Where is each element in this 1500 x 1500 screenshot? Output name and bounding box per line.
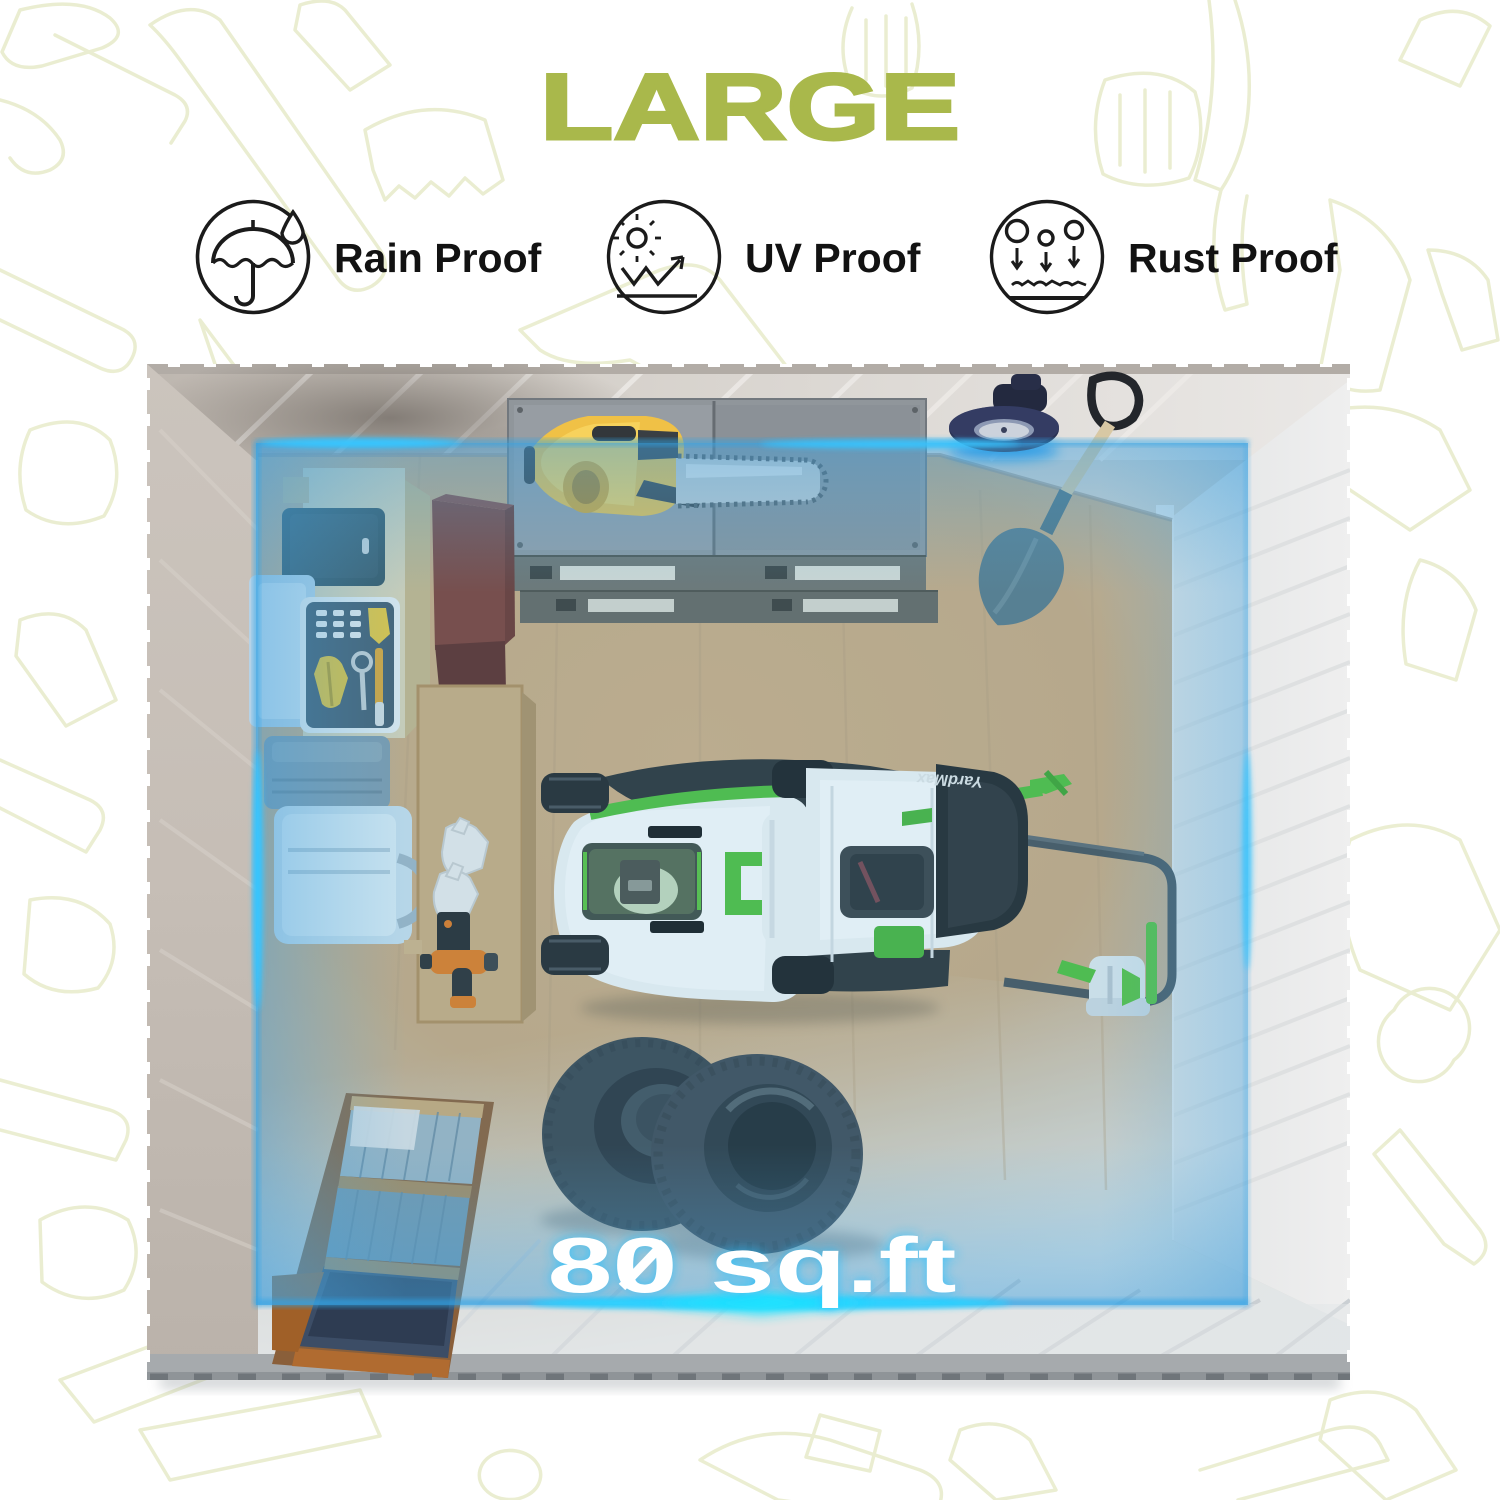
svg-text:80 sq.ft: 80 sq.ft <box>548 1221 957 1309</box>
svg-text:UV Proof: UV Proof <box>745 235 921 281</box>
svg-text:LARGE: LARGE <box>540 54 960 159</box>
svg-text:Rain Proof: Rain Proof <box>334 235 542 281</box>
svg-text:Rust Proof: Rust Proof <box>1128 235 1338 281</box>
